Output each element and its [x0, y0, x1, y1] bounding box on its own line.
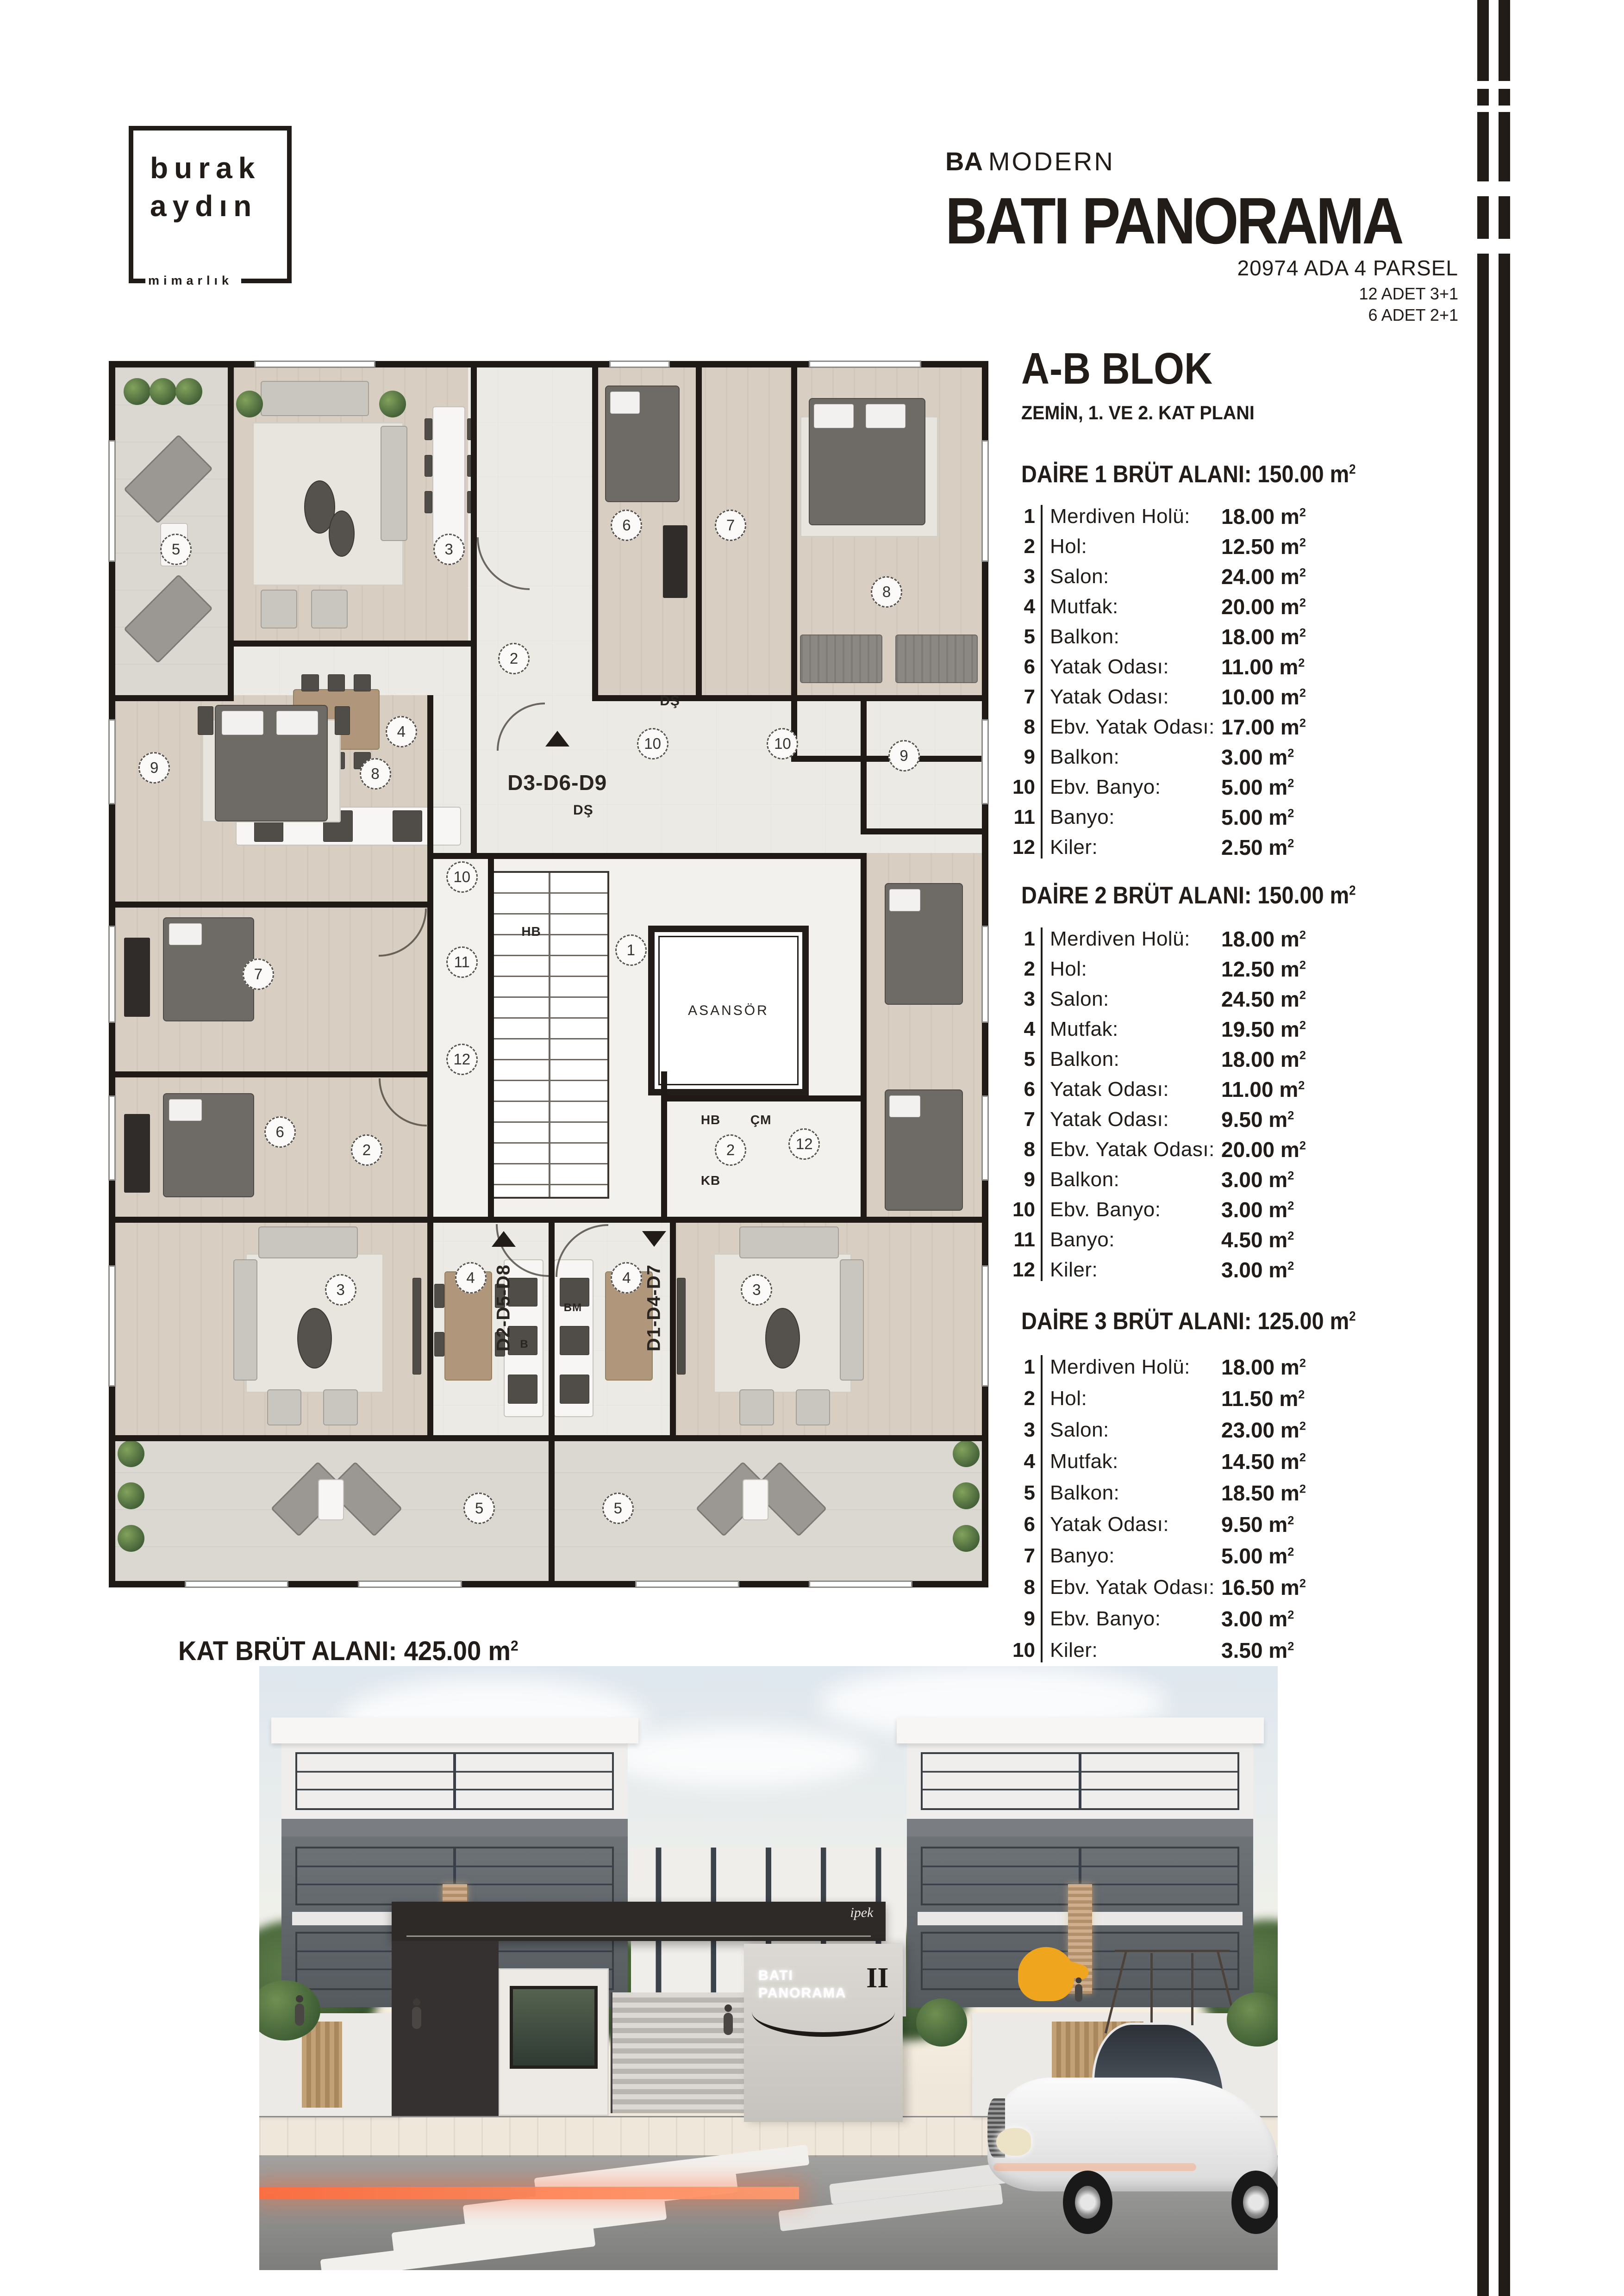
car-headlight	[996, 2128, 1031, 2155]
room-area: 3.00 m2	[1221, 1606, 1294, 1631]
room-area: 20.00 m2	[1221, 594, 1306, 619]
room-area: 11.50 m2	[1221, 1386, 1305, 1411]
table-row: 6Yatak Odası:11.00 m2	[1012, 652, 1401, 682]
plant	[953, 1482, 980, 1509]
plan-label: D3-D6-D9	[507, 770, 607, 795]
furniture	[169, 923, 202, 945]
plan-label: BM	[564, 1301, 582, 1314]
furniture	[124, 1114, 150, 1193]
room-number: 9	[1012, 746, 1035, 769]
furniture	[267, 1389, 302, 1426]
table-row: 10Ebv. Banyo:3.00 m2	[1012, 1195, 1401, 1225]
room-label: Banyo:	[1050, 1228, 1115, 1251]
room-number: 2	[1012, 1387, 1035, 1410]
plan-window	[108, 1095, 116, 1181]
furniture	[610, 392, 640, 413]
room-number: 12	[1012, 836, 1035, 859]
room-area: 16.50 m2	[1221, 1575, 1306, 1600]
room-marker-10: 10	[767, 728, 798, 759]
room-number: 9	[1012, 1168, 1035, 1191]
room-area: 24.50 m2	[1221, 987, 1306, 1012]
table-row: 6Yatak Odası:9.50 m2	[1012, 1509, 1401, 1540]
room-marker-2: 2	[715, 1134, 746, 1166]
table-row: 2Hol:11.50 m2	[1012, 1383, 1401, 1414]
room-marker-4: 4	[455, 1262, 487, 1294]
plan-window	[809, 1580, 913, 1588]
plan-wall	[471, 367, 477, 853]
room-number: 3	[1012, 988, 1035, 1011]
table-row: 5Balkon:18.50 m2	[1012, 1477, 1401, 1509]
room-area: 12.50 m2	[1221, 534, 1306, 559]
room-marker-9: 9	[138, 752, 170, 784]
room-label: Ebv. Yatak Odası:	[1050, 1138, 1215, 1161]
plan-window	[108, 926, 116, 1023]
room-number: 5	[1012, 1048, 1035, 1071]
furniture	[335, 706, 350, 735]
furniture	[354, 674, 371, 691]
room-area: 3.00 m2	[1221, 1257, 1294, 1282]
furniture	[425, 455, 432, 477]
room-label: Ebv. Banyo:	[1050, 776, 1161, 799]
room-marker-12: 12	[788, 1128, 820, 1160]
table-row: 8Ebv. Yatak Odası:16.50 m2	[1012, 1572, 1401, 1603]
right-bar-segment	[1477, 196, 1489, 239]
room-number: 1	[1012, 927, 1035, 951]
table-row: 4Mutfak:14.50 m2	[1012, 1446, 1401, 1477]
table-row: 12Kiler:2.50 m2	[1012, 832, 1401, 862]
room-label: Ebv. Yatak Odası:	[1050, 1576, 1215, 1599]
gate-booth-window	[510, 1986, 598, 2069]
floor-plan: ASANSÖR 53678241010998107111126212234435…	[109, 361, 988, 1587]
white-car	[987, 2022, 1278, 2234]
floor-total: KAT BRÜT ALANI: 425.00 m2	[178, 1636, 518, 1667]
brand-bold: BA	[945, 147, 983, 176]
room-label: Hol:	[1050, 958, 1087, 981]
furniture	[425, 491, 432, 513]
room-number: 6	[1012, 655, 1035, 678]
room-marker-6: 6	[264, 1116, 296, 1148]
room-number: 6	[1012, 1078, 1035, 1101]
furniture	[765, 1308, 800, 1369]
table-row: 1Merdiven Holü:18.00 m2	[1012, 1351, 1401, 1383]
room-marker-4: 4	[611, 1262, 642, 1294]
room-number: 5	[1012, 1481, 1035, 1505]
furniture	[508, 1375, 537, 1404]
room-area: 3.00 m2	[1221, 745, 1294, 770]
table-row: 5Balkon:18.00 m2	[1012, 622, 1401, 652]
room-number: 6	[1012, 1513, 1035, 1536]
car-front-wheel	[1063, 2171, 1112, 2234]
furniture	[222, 711, 263, 735]
room-label: Yatak Odası:	[1050, 1078, 1169, 1101]
plan-window	[981, 719, 989, 804]
plan-label: D2-D5-D8	[493, 1264, 514, 1351]
plan-wall	[115, 902, 433, 908]
swing-rope	[1150, 1953, 1153, 2026]
furniture	[434, 1332, 444, 1356]
room-number: 3	[1012, 1419, 1035, 1442]
building-right-stone-band	[907, 1819, 1253, 1836]
plan-wall	[791, 756, 982, 762]
plan-window	[108, 1265, 116, 1387]
room-marker-9: 9	[888, 740, 920, 772]
furniture	[258, 1226, 358, 1258]
right-bar-segment	[1477, 89, 1489, 106]
sign-line-1: BATI	[758, 1967, 846, 1985]
room-area: 18.00 m2	[1221, 1047, 1306, 1072]
table-row: 1Merdiven Holü:18.00 m2	[1012, 924, 1401, 954]
room-area: 10.00 m2	[1221, 684, 1306, 709]
plan-window	[108, 440, 116, 561]
orange-light-strip	[259, 2187, 799, 2199]
room-marker-11: 11	[446, 946, 478, 978]
room-area: 3.50 m2	[1221, 1638, 1294, 1663]
plan-wall	[115, 1217, 982, 1223]
direction-arrow-up	[492, 1231, 516, 1247]
sign-swoosh	[752, 2012, 895, 2037]
room-marker-3: 3	[741, 1274, 772, 1306]
room-marker-2: 2	[498, 643, 530, 674]
logo-tagline: mimarlık	[145, 273, 241, 289]
room-area: 17.00 m2	[1221, 715, 1306, 740]
right-bar-segment	[1499, 254, 1510, 2296]
room-number: 10	[1012, 1639, 1035, 1662]
person	[1075, 1977, 1082, 2002]
room-label: Kiler:	[1050, 1639, 1098, 1662]
furniture	[739, 1226, 839, 1258]
apartment-table-title: DAİRE 2 BRÜT ALANI: 150.00 m2	[1021, 882, 1363, 909]
gate-beam: ipek	[392, 1902, 886, 1941]
furniture	[560, 1375, 589, 1404]
table-row: 4Mutfak:20.00 m2	[1012, 591, 1401, 622]
table-row: 6Yatak Odası:11.00 m2	[1012, 1074, 1401, 1104]
fence-wood-section	[302, 2022, 342, 2108]
room-label: Ebv. Banyo:	[1050, 1607, 1161, 1630]
room-marker-10: 10	[446, 861, 478, 893]
plan-wall	[427, 853, 867, 859]
room-label: Hol:	[1050, 535, 1087, 558]
room-number: 7	[1012, 1544, 1035, 1568]
car-body	[987, 2078, 1278, 2192]
furniture	[323, 1389, 358, 1426]
plan-elevator: ASANSÖR	[648, 926, 808, 1095]
table-row: 4Mutfak:19.50 m2	[1012, 1014, 1401, 1044]
right-bar-segment	[1499, 196, 1510, 239]
room-label: Mutfak:	[1050, 1018, 1118, 1041]
plant	[175, 378, 202, 405]
table-row: 7Banyo:5.00 m2	[1012, 1540, 1401, 1572]
plan-door-arc	[477, 537, 530, 590]
apartment-table-title: DAİRE 3 BRÜT ALANI: 125.00 m2	[1021, 1307, 1363, 1335]
plan-window	[809, 361, 921, 368]
furniture	[814, 404, 854, 428]
room-number: 9	[1012, 1607, 1035, 1630]
table-row: 5Balkon:18.00 m2	[1012, 1044, 1401, 1074]
room-number: 1	[1012, 1356, 1035, 1379]
apartment-table-1: DAİRE 1 BRÜT ALANI: 150.00 m21Merdiven H…	[1012, 460, 1401, 862]
room-marker-3: 3	[433, 534, 465, 565]
room-number: 7	[1012, 1108, 1035, 1131]
plan-wall	[661, 1071, 667, 1217]
plan-wall	[488, 853, 494, 1217]
sign-numeral: II	[866, 1962, 888, 1995]
room-area: 18.00 m2	[1221, 927, 1306, 952]
furniture	[261, 590, 297, 628]
furniture	[328, 674, 345, 691]
apartment-table-title: DAİRE 1 BRÜT ALANI: 150.00 m2	[1021, 460, 1363, 488]
plant	[118, 1525, 144, 1552]
plan-window	[981, 1095, 989, 1181]
table-row: 9Balkon:3.00 m2	[1012, 742, 1401, 772]
room-number: 8	[1012, 716, 1035, 739]
plan-door-arc	[556, 1224, 608, 1277]
furniture	[560, 1326, 589, 1355]
table-row: 2Hol:12.50 m2	[1012, 954, 1401, 984]
furniture	[432, 406, 465, 546]
sign-line-2: PANORAMA	[758, 1985, 846, 2002]
room-number: 2	[1012, 535, 1035, 558]
plan-label: D1-D4-D7	[644, 1264, 665, 1351]
logo-word-2: aydın	[150, 187, 287, 225]
room-marker-8: 8	[871, 576, 902, 608]
plant	[379, 391, 406, 417]
furniture	[198, 706, 213, 735]
plan-window	[609, 361, 670, 368]
furniture	[677, 1278, 686, 1375]
person	[295, 1995, 304, 2026]
table-row: 3Salon:24.50 m2	[1012, 984, 1401, 1014]
room-marker-6: 6	[611, 510, 642, 541]
plant	[124, 378, 150, 405]
room-area: 24.00 m2	[1221, 564, 1306, 589]
architect-logo: burak aydın mimarlık	[129, 126, 292, 283]
room-area: 9.50 m2	[1221, 1512, 1294, 1537]
table-row: 12Kiler:3.00 m2	[1012, 1255, 1401, 1285]
furniture	[412, 1278, 421, 1375]
room-area: 20.00 m2	[1221, 1137, 1306, 1162]
right-bar-segment	[1499, 0, 1510, 81]
plan-window	[108, 719, 116, 804]
table-row: 11Banyo:5.00 m2	[1012, 802, 1401, 832]
plant	[236, 391, 263, 417]
room-area: 9.50 m2	[1221, 1107, 1294, 1132]
building-left-parapet	[271, 1717, 638, 1743]
bush	[916, 1998, 967, 2047]
plan-wall	[696, 367, 702, 695]
plan-wall	[115, 1435, 982, 1441]
right-bar-segment	[1477, 0, 1489, 81]
plan-staircase	[488, 871, 609, 1199]
room-label: Kiler:	[1050, 1258, 1098, 1282]
building-right-top-floor	[907, 1743, 1253, 1819]
plan-wall	[592, 695, 982, 701]
room-marker-3: 3	[325, 1274, 356, 1306]
room-area: 11.00 m2	[1221, 654, 1305, 679]
room-number: 10	[1012, 1198, 1035, 1221]
furniture	[301, 674, 319, 691]
table-row: 3Salon:23.00 m2	[1012, 1414, 1401, 1446]
furniture	[895, 635, 978, 683]
furniture	[434, 1284, 444, 1308]
room-label: Balkon:	[1050, 746, 1119, 769]
plan-wall	[861, 695, 867, 828]
room-area: 2.50 m2	[1221, 835, 1294, 860]
plan-wall	[115, 1071, 433, 1077]
plan-wall	[861, 853, 867, 1217]
plant	[118, 1482, 144, 1509]
room-area: 5.00 m2	[1221, 805, 1294, 830]
apartment-table-rows: 1Merdiven Holü:18.00 m22Hol:11.50 m23Sal…	[1012, 1351, 1401, 1666]
plan-window	[981, 926, 989, 1023]
room-label: Salon:	[1050, 1419, 1109, 1442]
apartment-table-3: DAİRE 3 BRÜT ALANI: 125.00 m21Merdiven H…	[1012, 1307, 1401, 1666]
room-marker-1: 1	[615, 934, 647, 966]
room-label: Balkon:	[1050, 1481, 1119, 1505]
entrance-sign-text: BATI PANORAMA	[758, 1967, 846, 2002]
room-number: 3	[1012, 565, 1035, 588]
table-row: 11Banyo:4.50 m2	[1012, 1225, 1401, 1255]
room-label: Balkon:	[1050, 1048, 1119, 1071]
right-bar-segment	[1499, 112, 1510, 181]
plan-wall	[592, 367, 598, 695]
right-bar-segment	[1499, 89, 1510, 106]
table-row: 9Balkon:3.00 m2	[1012, 1164, 1401, 1195]
room-number: 8	[1012, 1576, 1035, 1599]
plan-label: DŞ	[573, 803, 593, 818]
furniture	[311, 590, 348, 628]
furniture	[261, 381, 369, 416]
plant	[118, 1440, 144, 1467]
table-row: 10Ebv. Banyo:5.00 m2	[1012, 772, 1401, 802]
plan-wall	[427, 1217, 433, 1435]
table-row: 7Yatak Odası:10.00 m2	[1012, 682, 1401, 712]
apartment-table-rows: 1Merdiven Holü:18.00 m22Hol:12.50 m23Sal…	[1012, 501, 1401, 862]
furniture	[800, 635, 882, 683]
furniture	[840, 1259, 864, 1381]
room-marker-8: 8	[360, 758, 391, 790]
table-row: 9Ebv. Banyo:3.00 m2	[1012, 1603, 1401, 1635]
furniture	[297, 1308, 332, 1369]
room-label: Merdiven Holü:	[1050, 927, 1190, 951]
room-number: 8	[1012, 1138, 1035, 1161]
room-marker-5: 5	[160, 534, 192, 565]
plan-label: DŞ	[660, 693, 680, 709]
plan-door-arc	[497, 703, 545, 751]
apartment-table-2: DAİRE 2 BRÜT ALANI: 150.00 m21Merdiven H…	[1012, 882, 1401, 1285]
plan-window	[185, 1580, 289, 1588]
room-area: 12.50 m2	[1221, 957, 1306, 982]
table-row: 1Merdiven Holü:18.00 m2	[1012, 501, 1401, 531]
plan-window	[358, 1580, 462, 1588]
room-label: Balkon:	[1050, 1168, 1119, 1191]
room-number: 7	[1012, 685, 1035, 709]
room-area: 18.50 m2	[1221, 1481, 1306, 1506]
furniture	[663, 525, 687, 598]
room-marker-4: 4	[386, 716, 417, 747]
room-number: 11	[1012, 1228, 1035, 1251]
room-area: 14.50 m2	[1221, 1449, 1306, 1474]
plan-wall	[427, 695, 433, 1217]
room-area: 4.50 m2	[1221, 1227, 1294, 1252]
room-marker-5: 5	[463, 1493, 495, 1524]
room-label: Kiler:	[1050, 836, 1098, 859]
plant	[953, 1525, 980, 1552]
plan-label: B	[520, 1338, 528, 1351]
plan-wall	[861, 828, 982, 834]
plan-label: ÇM	[750, 1113, 772, 1127]
room-label: Yatak Odası:	[1050, 1108, 1169, 1131]
room-label: Yatak Odası:	[1050, 685, 1169, 709]
gate-booth	[499, 1968, 609, 2116]
room-label: Merdiven Holü:	[1050, 505, 1190, 528]
room-number: 5	[1012, 625, 1035, 648]
table-row: 8Ebv. Yatak Odası:20.00 m2	[1012, 1134, 1401, 1164]
room-number: 4	[1012, 1018, 1035, 1041]
plan-window	[635, 1580, 739, 1588]
table-row: 8Ebv. Yatak Odası:17.00 m2	[1012, 712, 1401, 742]
room-number: 12	[1012, 1258, 1035, 1282]
furniture	[889, 1095, 920, 1117]
room-label: Merdiven Holü:	[1050, 1356, 1190, 1379]
room-marker-7: 7	[715, 510, 746, 541]
direction-arrow-down	[642, 1231, 666, 1247]
direction-arrow-up	[545, 731, 569, 747]
building-right-parapet	[897, 1717, 1264, 1743]
room-marker-7: 7	[243, 958, 274, 990]
furniture	[329, 510, 355, 557]
entrance-sign-wall: BATI PANORAMA II	[744, 1944, 903, 2122]
room-label: Salon:	[1050, 988, 1109, 1011]
room-marker-12: 12	[446, 1044, 478, 1075]
swing-rope	[1191, 1953, 1193, 2026]
furniture	[866, 404, 906, 428]
furniture	[425, 418, 432, 440]
building-left-top-floor	[281, 1743, 628, 1819]
plan-wall	[549, 1217, 555, 1581]
room-label: Balkon:	[1050, 625, 1119, 648]
room-area: 23.00 m2	[1221, 1418, 1306, 1443]
room-number: 11	[1012, 806, 1035, 829]
room-label: Banyo:	[1050, 806, 1115, 829]
window-glass	[295, 1752, 614, 1810]
room-area: 5.00 m2	[1221, 775, 1294, 800]
furniture	[233, 1259, 257, 1381]
window-glass	[921, 1752, 1239, 1810]
room-number: 1	[1012, 505, 1035, 528]
furniture	[124, 938, 150, 1016]
gate-dark-panel	[392, 1941, 499, 2116]
room-label: Banyo:	[1050, 1544, 1115, 1568]
room-label: Hol:	[1050, 1387, 1087, 1410]
plan-wall	[115, 695, 234, 701]
room-area: 5.00 m2	[1221, 1543, 1294, 1568]
room-area: 3.00 m2	[1221, 1197, 1294, 1222]
plan-window	[981, 440, 989, 561]
plant	[150, 378, 176, 405]
swing-bar	[1115, 1950, 1230, 1952]
plan-label: HB	[521, 924, 541, 939]
room-area: 11.00 m2	[1221, 1077, 1305, 1102]
car-rear-wheel	[1231, 2171, 1278, 2234]
room-area: 18.00 m2	[1221, 1355, 1306, 1380]
furniture	[276, 711, 318, 735]
room-number: 4	[1012, 595, 1035, 618]
room-label: Ebv. Yatak Odası:	[1050, 716, 1215, 739]
room-label: Yatak Odası:	[1050, 1513, 1169, 1536]
logo-word-1: burak	[150, 149, 287, 187]
person	[412, 1998, 421, 2029]
plan-label: KB	[701, 1173, 720, 1188]
